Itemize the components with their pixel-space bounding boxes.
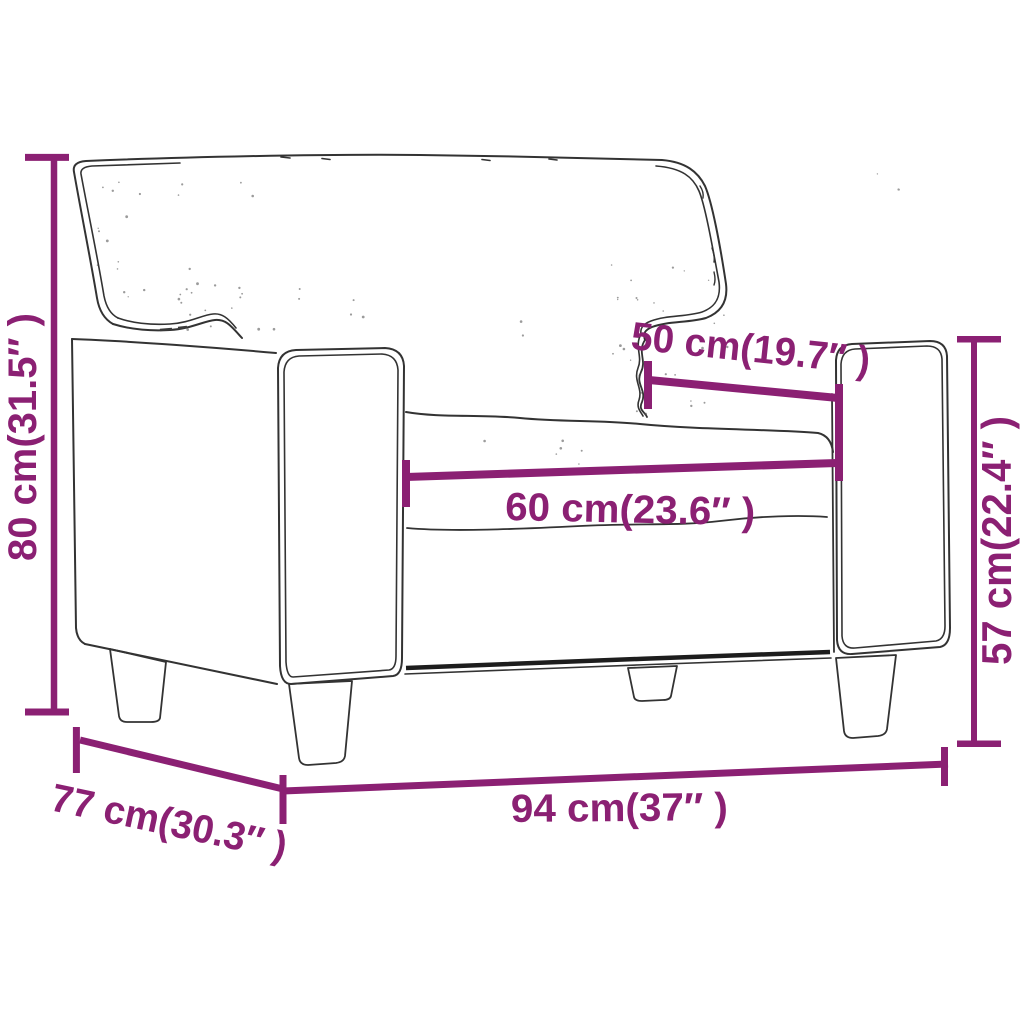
svg-text:94 cm(37″ ): 94 cm(37″ )	[511, 785, 728, 831]
svg-text:60 cm(23.6″ ): 60 cm(23.6″ )	[505, 485, 756, 534]
svg-text:80 cm(31.5″ ): 80 cm(31.5″ )	[1, 313, 45, 561]
svg-text:57 cm(22.4″ ): 57 cm(22.4″ )	[973, 416, 1020, 665]
